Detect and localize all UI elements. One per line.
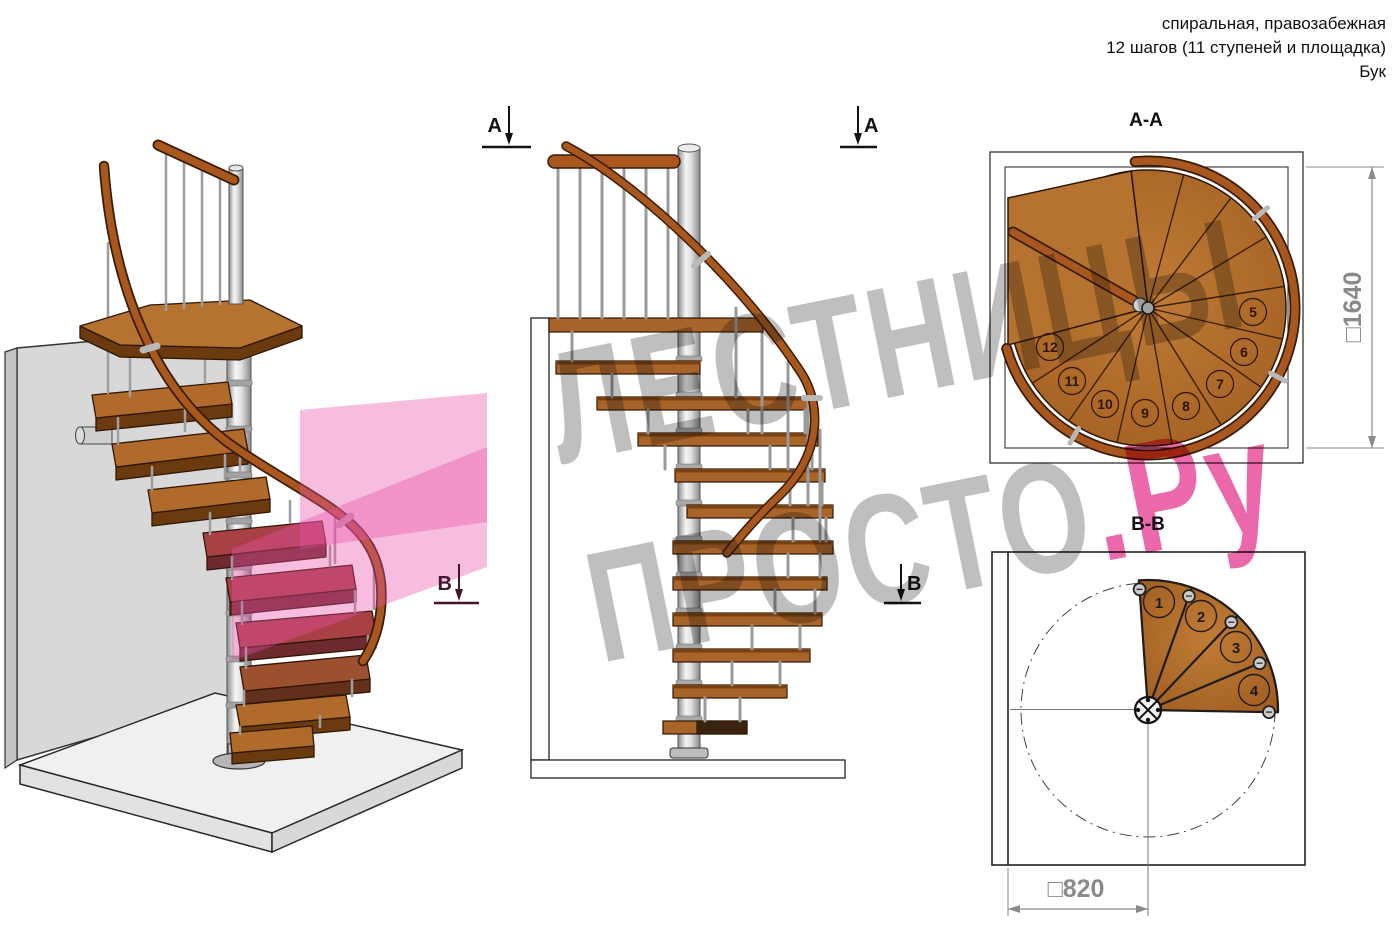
section-aa-title: А-А [1129,110,1163,131]
step-number: 7 [1216,376,1224,392]
aa-dim-label: □1640 [1339,272,1367,343]
step-number: 9 [1141,405,1149,421]
aa-center-pole [1142,302,1154,314]
landing [80,300,302,360]
elev-wall [531,318,549,760]
marker-a-label: А [864,115,878,137]
aa-dimension: □1640 [1306,167,1384,448]
step-number: 12 [1042,339,1058,355]
step-number: 4 [1250,683,1259,700]
elev-step-edge [697,721,747,734]
header-line-1: спиральная, правозабежная [1106,12,1386,36]
bb-dim-label: □820 [1048,875,1105,903]
section-marker-a-right: А [840,106,878,147]
section-marker-a-left: А [482,106,531,147]
header-line-2: 12 шагов (11 ступеней и площадка) [1106,36,1386,60]
drawing-canvas: В [0,0,1400,939]
header-line-3: Бук [1106,60,1386,84]
wall-bracket-cap [76,427,85,444]
section-aa-view: А-А [990,110,1384,463]
step-number: 1 [1155,595,1163,612]
elev-landing [549,318,763,332]
iso-view: В [5,145,487,852]
section-marker-b-elev: В [884,564,921,603]
step-number: 2 [1197,609,1205,626]
railing-post [229,168,243,304]
bb-dimension: □820 [1008,868,1148,916]
step-number: 10 [1097,396,1113,412]
step-number: 3 [1232,640,1240,657]
elev-column-base [670,748,708,758]
step-number: 5 [1249,304,1257,320]
section-bb-view: В-В [992,514,1305,916]
wall-edge [5,348,17,768]
step-number: 11 [1065,373,1080,389]
marker-b-label: В [438,573,452,595]
step-number: 8 [1182,398,1190,414]
elev-column-cap [678,144,700,152]
elevation-view: А А В [482,106,921,778]
step-number: 6 [1240,344,1248,360]
marker-a-label: А [488,115,502,137]
landing-railing [158,145,243,310]
section-bb-title: В-В [1131,514,1165,535]
rail-sleeve [143,346,157,350]
elev-top-rail [548,155,680,168]
marker-b-label: В [907,573,921,595]
elev-floor [531,760,845,778]
bb-center-pole [1135,697,1161,723]
header-note: спиральная, правозабежная 12 шагов (11 с… [1106,12,1386,84]
